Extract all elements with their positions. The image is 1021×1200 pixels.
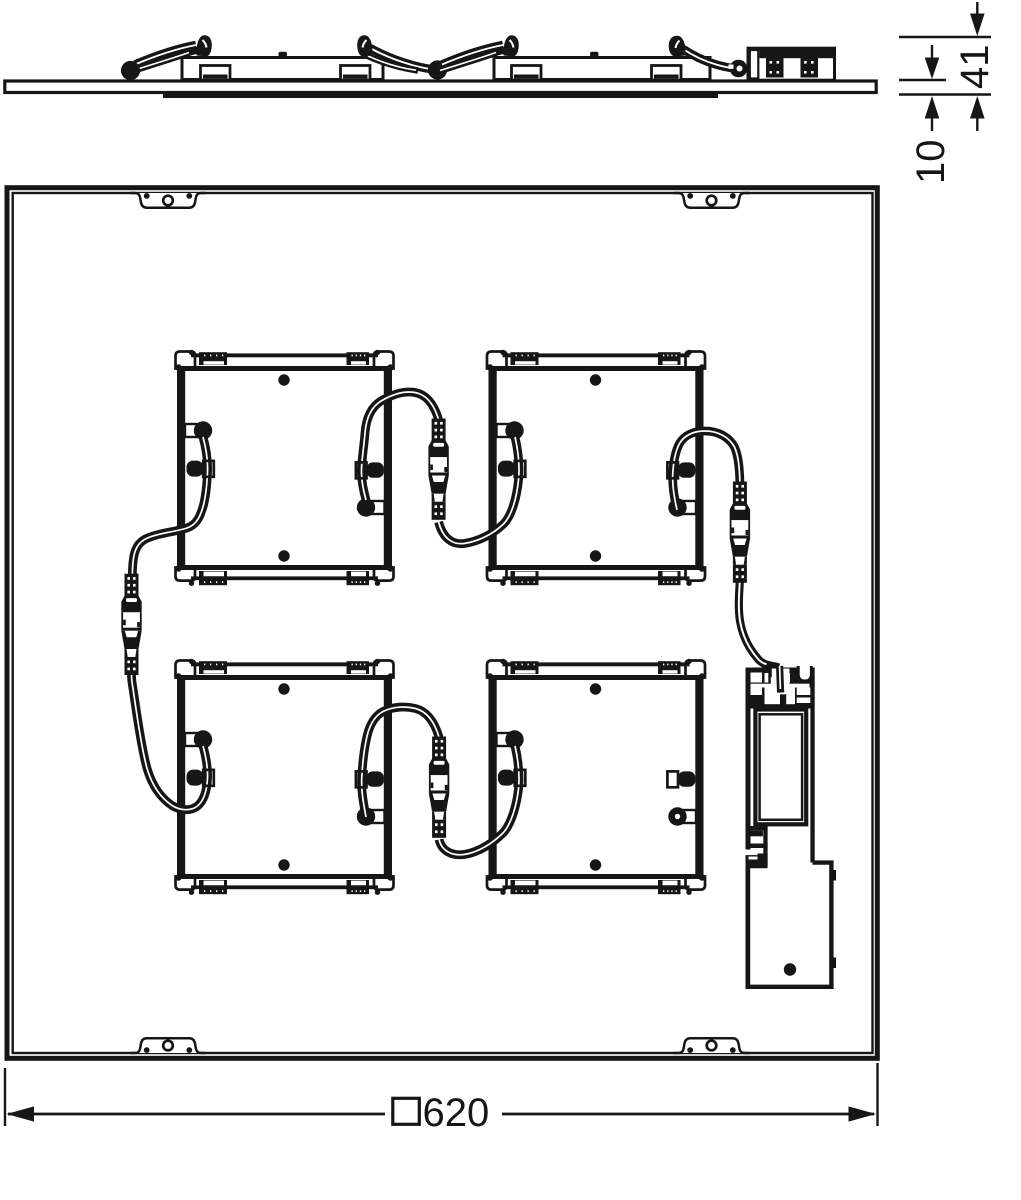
svg-text:10: 10	[909, 140, 953, 185]
svg-text:41: 41	[953, 45, 997, 90]
svg-text:620: 620	[423, 1091, 490, 1135]
